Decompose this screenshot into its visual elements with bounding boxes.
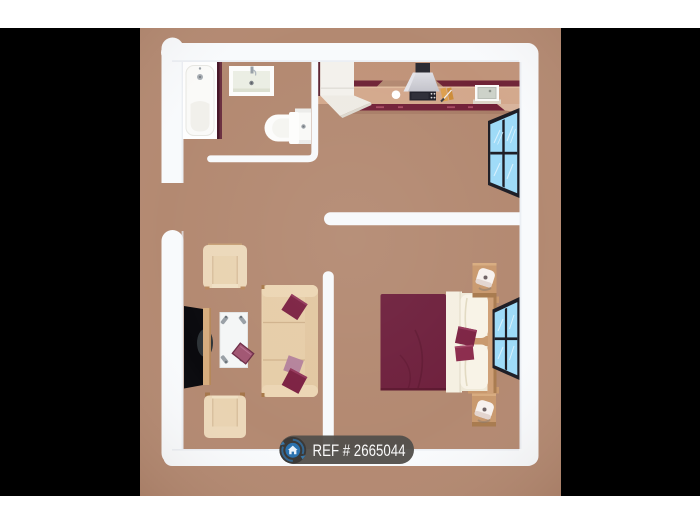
svg-text:REF # 2665044: REF # 2665044 [313, 442, 406, 460]
